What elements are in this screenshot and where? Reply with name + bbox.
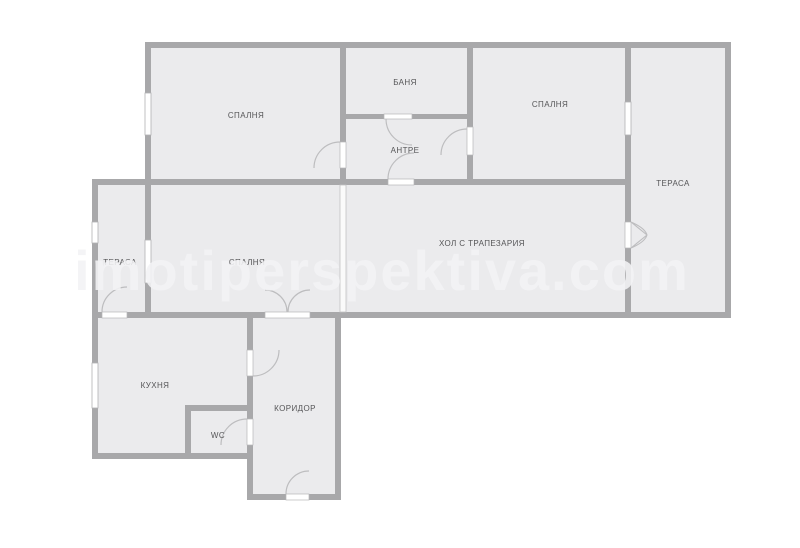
- floor-plan-page: СПАЛНЯ БАНЯ АНТРЕ СПАЛНЯ ТЕРАСА ХОЛ С ТР…: [0, 0, 800, 548]
- door-opening-bedroom-top-left: [340, 142, 346, 168]
- window-kitchen: [92, 363, 98, 408]
- wall-kitchen-corridor-a: [247, 315, 253, 350]
- wall-kitchen-bottom: [92, 453, 253, 459]
- wall-kitchen-corridor-c: [247, 445, 253, 497]
- wall-terrace-left-a: [625, 42, 631, 102]
- label-wc: WC: [211, 431, 225, 440]
- door-opening-double-bedroom-left: [265, 312, 310, 318]
- label-corridor: КОРИДОР: [274, 404, 316, 413]
- window-bedroom-top-left: [145, 93, 151, 135]
- wall-corridor-right: [335, 315, 341, 497]
- wall-terrace-left-b: [625, 135, 631, 222]
- floor-kitchen-wc: [92, 315, 255, 459]
- label-entry-hall: АНТРЕ: [391, 146, 420, 155]
- door-opening-kitchen: [247, 350, 253, 376]
- label-terrace-right: ТЕРАСА: [656, 179, 690, 188]
- wall-bath-divider-left: [340, 114, 384, 119]
- wall-kitchen-corridor-b: [247, 376, 253, 419]
- wall-bottom-c: [310, 312, 731, 318]
- watermark-text: imotiperspektiva.com: [74, 239, 690, 302]
- wall-bath-right-b: [467, 155, 473, 185]
- door-opening-bedroom-top-right: [467, 127, 473, 155]
- wall-bedroom-left-a: [145, 42, 151, 93]
- door-opening-entry-hall: [388, 179, 414, 185]
- label-bedroom-top-left: СПАЛНЯ: [228, 111, 264, 120]
- wall-wc-left: [185, 405, 191, 459]
- wall-top-exterior: [145, 42, 731, 48]
- wall-wc-top: [185, 405, 253, 411]
- wall-bedroom-left-b: [145, 135, 151, 240]
- wall-mid-vertical-a: [340, 42, 346, 142]
- door-opening-wc: [247, 419, 253, 445]
- wall-left-exterior-c: [92, 408, 98, 459]
- wall-main-divider-right: [414, 179, 631, 185]
- floor-plan-drawing: СПАЛНЯ БАНЯ АНТРЕ СПАЛНЯ ТЕРАСА ХОЛ С ТР…: [0, 0, 800, 548]
- door-opening-bathroom: [384, 114, 412, 119]
- wall-left-exterior-a: [92, 179, 98, 222]
- wall-bath-right-a: [467, 42, 473, 127]
- window-bedroom-right-terrace: [625, 102, 631, 135]
- label-bedroom-top-right: СПАЛНЯ: [532, 100, 568, 109]
- wall-right-exterior: [725, 42, 731, 318]
- wall-mid-vertical-b: [340, 168, 346, 185]
- wall-bath-divider-right: [412, 114, 473, 119]
- door-opening-kitchen-terrace: [102, 312, 127, 318]
- door-opening-entrance: [286, 494, 309, 500]
- label-kitchen: КУХНЯ: [141, 381, 170, 390]
- label-bathroom: БАНЯ: [393, 78, 417, 87]
